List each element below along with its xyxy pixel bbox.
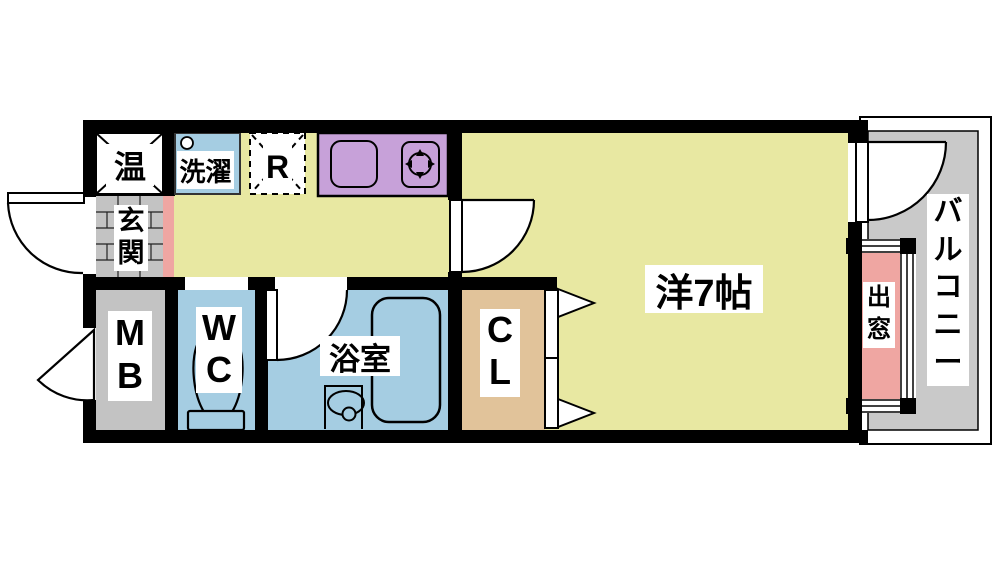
label-bathroom: 浴室 [320,336,400,376]
label-bay-window: 出窓 [863,282,895,348]
laundry-faucet-icon [181,137,193,149]
label-meter-box: MB [108,311,152,401]
label-entrance: 玄関 [114,205,148,271]
entrance-door [8,193,84,273]
label-closet: CL [480,309,520,397]
floorplan-canvas: 温 洗濯 R 玄関 MB WC 浴室 CL 洋7帖 出窓 バルコニー [0,0,1000,562]
label-balcony: バルコニー [927,194,969,386]
bath-drain-icon [343,408,356,421]
label-water-heater: 温 [106,144,154,186]
floorplan-drawing [0,0,1000,562]
label-laundry: 洗濯 [177,151,234,189]
label-refrigerator: R [263,146,292,188]
meter-box-door [38,330,94,400]
label-main-room: 洋7帖 [645,265,763,313]
label-toilet: WC [196,307,242,393]
entrance-step-strip [163,196,174,277]
